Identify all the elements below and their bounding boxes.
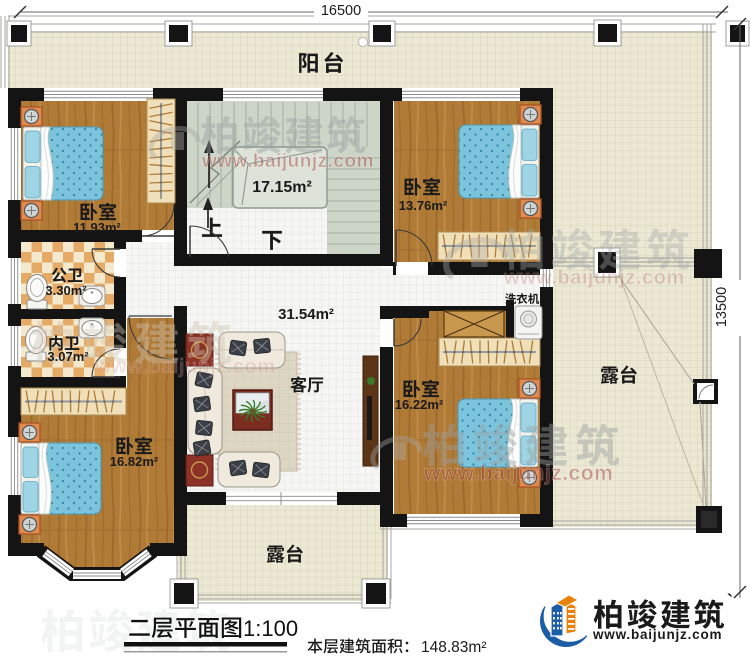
svg-text:3.07m²: 3.07m² (47, 349, 89, 364)
svg-text:13500: 13500 (714, 287, 730, 327)
svg-text:13.76m²: 13.76m² (399, 198, 448, 213)
svg-text:www.baijunjz.com: www.baijunjz.com (201, 151, 374, 172)
svg-text:www.baijunjz.com: www.baijunjz.com (503, 267, 685, 289)
svg-text:17.15m²: 17.15m² (252, 179, 312, 196)
svg-text:www.baijunjz.com: www.baijunjz.com (94, 356, 276, 378)
svg-text:1:100: 1:100 (243, 616, 298, 641)
svg-text:148.83m²: 148.83m² (421, 639, 486, 656)
svg-text:16.22m²: 16.22m² (395, 397, 444, 412)
svg-text:31.54m²: 31.54m² (278, 306, 334, 323)
svg-text:www.baijunjz.com: www.baijunjz.com (592, 627, 722, 642)
svg-text:www.baijunjz.com: www.baijunjz.com (423, 462, 613, 485)
svg-text:11.93m²: 11.93m² (73, 220, 121, 235)
svg-text:3.30m²: 3.30m² (45, 283, 87, 298)
svg-text:16500: 16500 (321, 3, 361, 19)
svg-text:`: ` (727, 591, 733, 611)
svg-text:16.82m²: 16.82m² (110, 454, 159, 469)
